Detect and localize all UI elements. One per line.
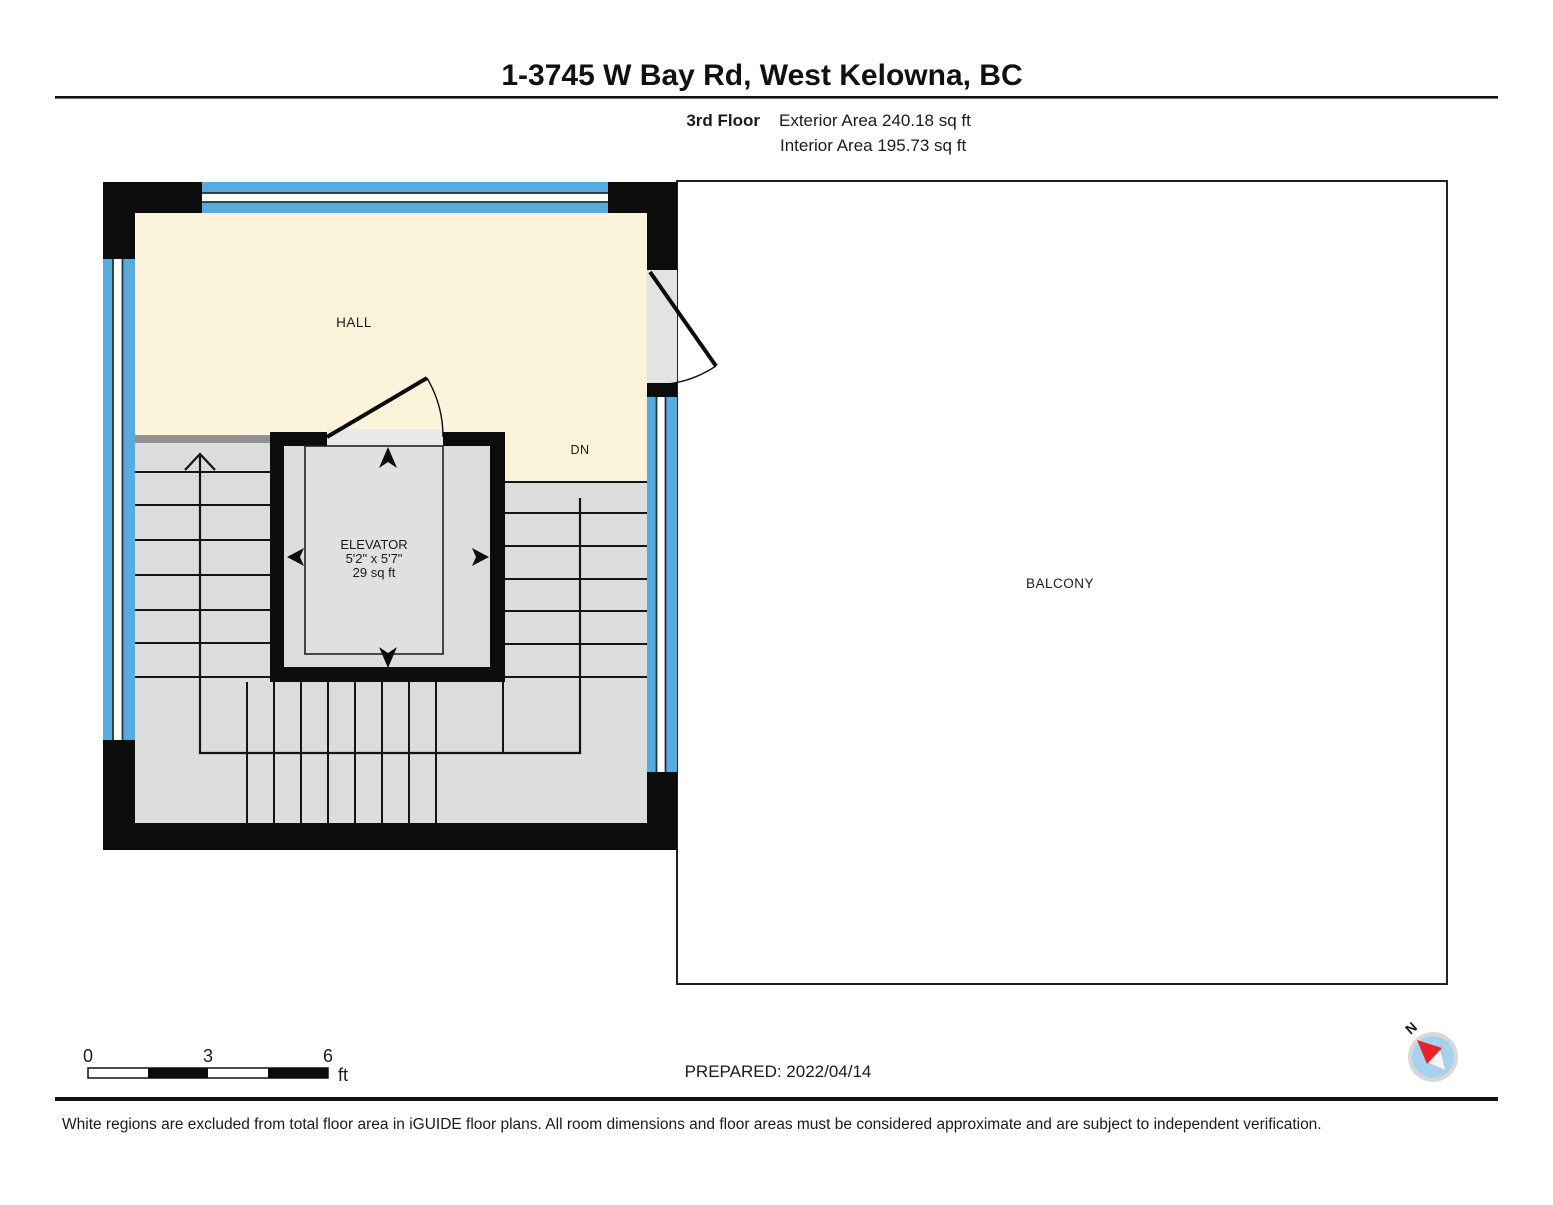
scale-tick-0: 0 <box>83 1046 93 1066</box>
elevator-dims: 5'2" x 5'7" <box>346 551 403 566</box>
balcony-label: BALCONY <box>1026 576 1094 591</box>
compass-north-label: N <box>1402 1019 1420 1038</box>
scale-bar: 0 3 6 ft <box>83 1046 348 1085</box>
disclaimer: White regions are excluded from total fl… <box>62 1116 1322 1133</box>
landing-edge-strip <box>135 435 270 443</box>
wall-bottom <box>103 823 677 850</box>
header-divider <box>55 96 1498 99</box>
scale-tick-3: 3 <box>203 1046 213 1066</box>
wall-bottom-right <box>647 772 677 850</box>
header: 1-3745 W Bay Rd, West Kelowna, BC 3rd Fl… <box>55 59 1498 155</box>
floorplan-canvas: 1-3745 W Bay Rd, West Kelowna, BC 3rd Fl… <box>0 0 1553 1200</box>
elevator-door-threshold <box>327 429 443 446</box>
dn-label: DN <box>570 443 589 457</box>
footer: White regions are excluded from total fl… <box>55 1097 1498 1133</box>
footer-divider <box>55 1097 1498 1101</box>
balcony: BALCONY <box>677 181 1447 984</box>
scale-tick-6: 6 <box>323 1046 333 1066</box>
page-title: 1-3745 W Bay Rd, West Kelowna, BC <box>501 59 1022 92</box>
exterior-area: Exterior Area 240.18 sq ft <box>779 111 971 130</box>
scale-bar-seg-1 <box>148 1068 208 1078</box>
window-top <box>202 182 608 213</box>
wall-top-right-h <box>608 182 677 213</box>
scale-bar-seg-2 <box>268 1068 328 1078</box>
window-left <box>103 259 135 740</box>
elevator-area: 29 sq ft <box>353 565 396 580</box>
wall-top-right-v <box>647 213 677 270</box>
scale-unit: ft <box>338 1065 348 1085</box>
floor-label: 3rd Floor <box>686 111 760 130</box>
compass: N <box>1402 1019 1456 1080</box>
window-right <box>647 397 677 772</box>
stairwell-floor-right <box>505 482 647 823</box>
prepared-date: PREPARED: 2022/04/14 <box>685 1062 872 1081</box>
hall-label: HALL <box>336 315 372 330</box>
interior-area: Interior Area 195.73 sq ft <box>780 136 966 155</box>
wall-top-left-v <box>103 182 135 259</box>
elevator-label: ELEVATOR <box>340 537 407 552</box>
